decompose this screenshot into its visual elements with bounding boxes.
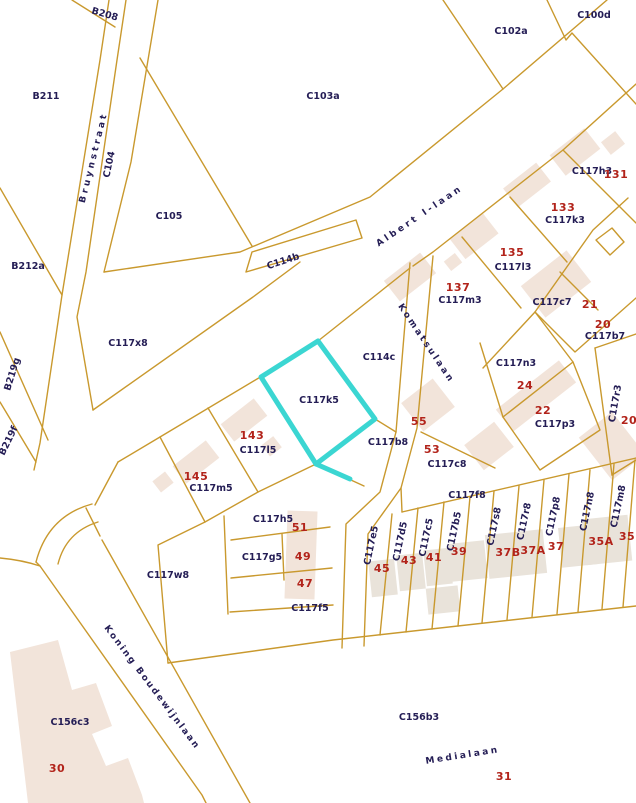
street-labels: BruynstraatAlbert I-laanKomatsulaanKonin… <box>78 111 501 767</box>
highlight-layer <box>261 341 375 479</box>
parcel-label-c100d: C100d <box>577 10 611 21</box>
house-number-41: 41 <box>426 551 442 564</box>
parcel-label-c117x8: C117x8 <box>108 338 148 349</box>
parcel-label-c117f5: C117f5 <box>291 603 329 614</box>
house-number-131: 131 <box>604 168 628 181</box>
parcel-label-c117m5: C117m5 <box>189 483 232 494</box>
house-number-31: 31 <box>496 770 512 783</box>
parcel-label-c117k5: C117k5 <box>299 395 339 406</box>
parcel-label-c117g5: C117g5 <box>242 552 282 563</box>
parcel-label-c117k3: C117k3 <box>545 215 585 226</box>
parcel-label-c156c3: C156c3 <box>50 717 89 728</box>
parcel-label-c117l3: C117l3 <box>495 262 532 273</box>
house-number-43: 43 <box>401 554 417 567</box>
parcel-label-c117m3: C117m3 <box>438 295 481 306</box>
parcel-label-c117l5: C117l5 <box>240 445 277 456</box>
parcel-label-c117c7: C117c7 <box>532 297 571 308</box>
parcel-label-c117n3: C117n3 <box>496 358 536 369</box>
parcel-label-c103a: C103a <box>306 91 339 102</box>
house-number-37b: 37B <box>495 546 520 559</box>
street-label-koning-boudewijnlaan: Koning Boudewijnlaan <box>102 624 202 752</box>
parcel-label-c114b: C114b <box>266 251 302 272</box>
house-number-47: 47 <box>297 577 313 590</box>
house-number-39: 39 <box>451 545 467 558</box>
house-number-145: 145 <box>184 470 208 483</box>
parcel-label-c156b3: C156b3 <box>399 712 439 723</box>
house-number-20: 20 <box>595 318 611 331</box>
parcel-label-b211: B211 <box>32 91 59 102</box>
parcel-label-c117f8: C117f8 <box>448 490 486 501</box>
house-number-135: 135 <box>500 246 524 259</box>
house-number-49: 49 <box>295 550 311 563</box>
house-number-137: 137 <box>446 281 470 294</box>
house-number-37: 37 <box>548 540 564 553</box>
house-number-20: 20 <box>621 414 636 427</box>
house-number-22: 22 <box>535 404 551 417</box>
house-number-21: 21 <box>582 298 598 311</box>
house-number-35a: 35A <box>588 535 613 548</box>
map-svg: B208B211B212aB219gB219fC104C105C103aC102… <box>0 0 636 803</box>
house-number-35: 35 <box>619 530 635 543</box>
house-number-24: 24 <box>517 379 533 392</box>
parcel-label-c117w8: C117w8 <box>147 570 190 581</box>
cadastral-map: B208B211B212aB219gB219fC104C105C103aC102… <box>0 0 636 803</box>
house-number-53: 53 <box>424 443 440 456</box>
parcel-label-b219g: B219g <box>2 356 22 392</box>
house-number-45: 45 <box>374 562 390 575</box>
street-label-medialaan: Medialaan <box>425 745 500 767</box>
parcel-labels: B208B211B212aB219gB219fC104C105C103aC102… <box>0 6 629 728</box>
parcel-label-b219f: B219f <box>0 424 21 458</box>
house-number-51: 51 <box>292 521 308 534</box>
parcel-label-c114c: C114c <box>363 352 395 363</box>
parcel-label-c117h5: C117h5 <box>253 514 293 525</box>
parcel-label-c117b8: C117b8 <box>368 437 409 448</box>
house-number-133: 133 <box>551 201 575 214</box>
parcel-label-c117e5: C117e5 <box>362 525 381 566</box>
parcel-label-c117b7: C117b7 <box>585 331 625 342</box>
house-number-30: 30 <box>49 762 65 775</box>
street-label-komatsulaan: Komatsulaan <box>395 302 456 385</box>
house-number-37a: 37A <box>520 544 545 557</box>
house-number-143: 143 <box>240 429 264 442</box>
parcel-label-c117p3: C117p3 <box>535 419 575 430</box>
house-number-55: 55 <box>411 415 427 428</box>
highlight-tail <box>316 464 350 479</box>
parcel-label-c102a: C102a <box>494 26 527 37</box>
parcel-label-b212a: B212a <box>11 261 44 272</box>
parcel-label-c105: C105 <box>156 211 183 222</box>
parcel-label-c117c8: C117c8 <box>427 459 466 470</box>
